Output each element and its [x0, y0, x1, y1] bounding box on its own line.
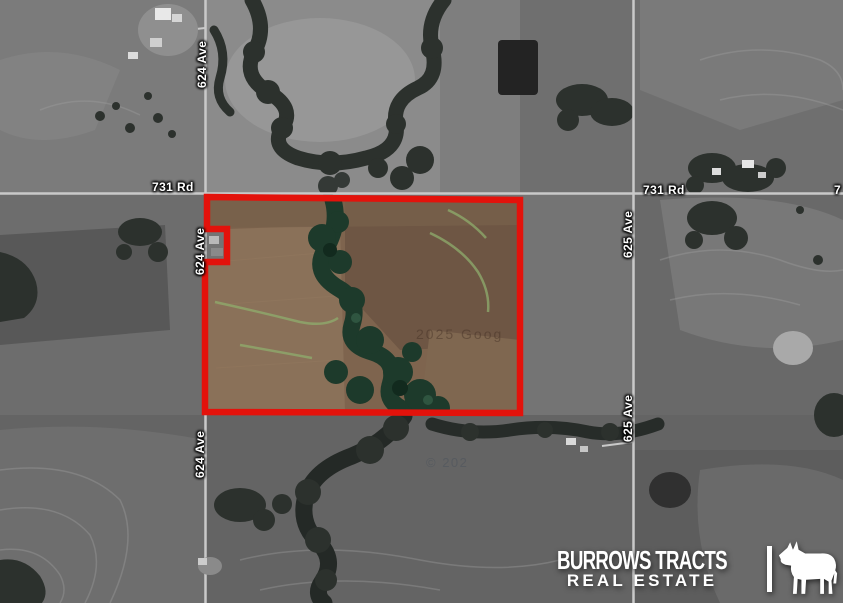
road-label-625-ave-lower: 625 Ave [622, 395, 635, 442]
mule-icon [777, 541, 839, 596]
road-label-624-ave-bottom: 624 Ave [194, 431, 207, 478]
logo-title: BURROWS TRACTS [557, 549, 727, 571]
aerial-map: 624 Ave 624 Ave 624 Ave 625 Ave 625 Ave … [0, 0, 843, 603]
road-label-731-rd-edge: 7 [834, 184, 841, 197]
imagery-watermark-upper: 2025 Goog [416, 326, 503, 342]
road-label-624-ave-mid: 624 Ave [194, 228, 207, 275]
road-label-731-rd-left: 731 Rd [152, 181, 194, 194]
imagery-watermark-lower: © 202 [426, 455, 468, 470]
road-label-731-rd-right: 731 Rd [643, 184, 685, 197]
light-pond [773, 331, 813, 365]
dark-pond [498, 40, 538, 95]
brand-logo: BURROWS TRACTS REAL ESTATE [524, 541, 839, 596]
road-label-624-ave-top: 624 Ave [196, 41, 209, 88]
parcel-interior [205, 197, 520, 420]
satellite-imagery [0, 0, 843, 603]
logo-text: BURROWS TRACTS REAL ESTATE [524, 549, 760, 589]
road-label-625-ave-upper: 625 Ave [622, 211, 635, 258]
vertical-bar-icon [767, 546, 772, 592]
